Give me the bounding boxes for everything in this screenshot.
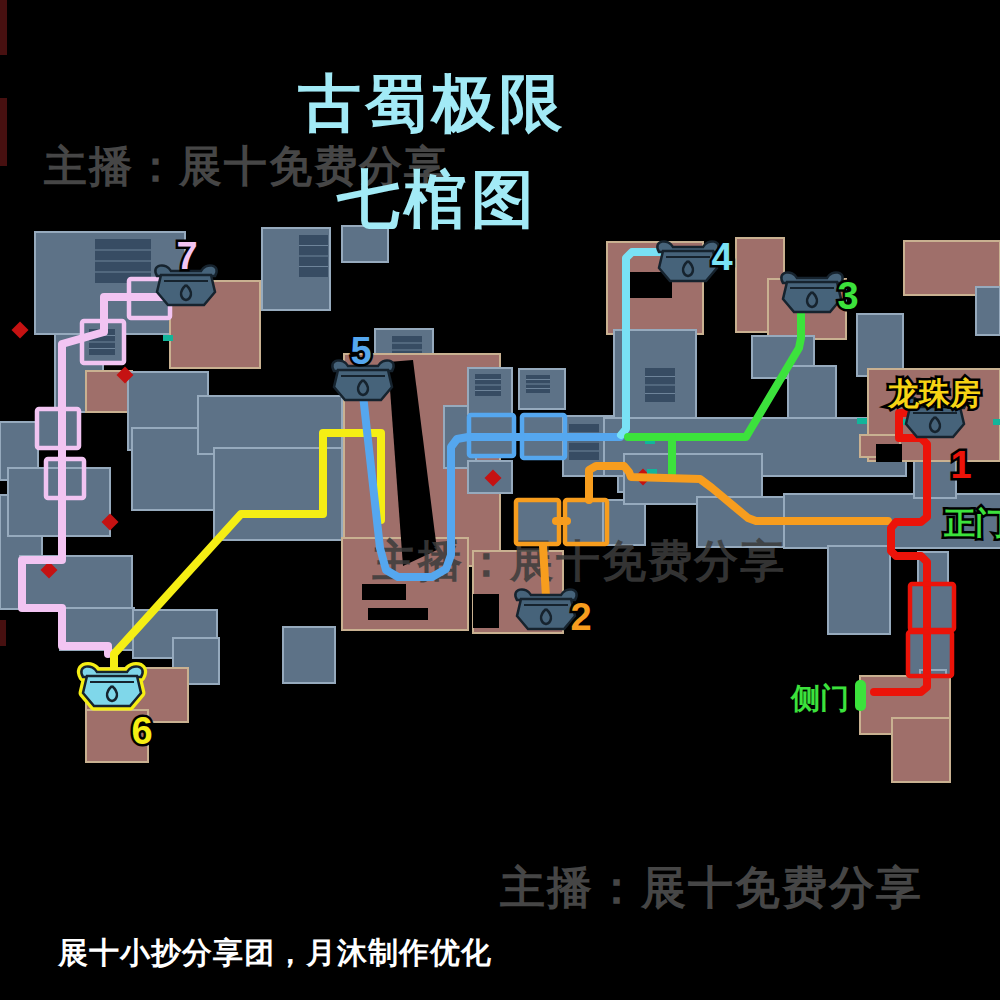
label-side-gate: 侧门 — [790, 682, 849, 714]
coffin-icon-3 — [781, 272, 842, 312]
route-7-number: 7 — [176, 235, 197, 277]
door-marker — [857, 418, 867, 424]
map-room-red — [892, 718, 950, 782]
map-room-blue — [976, 287, 1000, 335]
map-edge-decoration — [0, 0, 7, 55]
coffin-icon-4 — [657, 241, 718, 281]
coffin-icon-2 — [515, 589, 576, 629]
map-room-blue — [20, 556, 132, 610]
map-edge-decoration — [0, 98, 7, 166]
map-hole — [876, 444, 902, 462]
map-room-blue — [788, 366, 836, 424]
route-5-number: 5 — [350, 330, 371, 372]
page-title-line1: 古蜀极限 — [298, 72, 566, 135]
side-gate-door-marker — [855, 680, 866, 711]
page-title-line2: 七棺图 — [337, 168, 538, 231]
label-main-gate: 正门 — [944, 506, 1000, 541]
map-room-blue — [910, 584, 954, 630]
screenshot-root: { "texts": { "title_line1": "古蜀极限", "tit… — [0, 0, 1000, 1000]
route-1-number: 1 — [950, 444, 971, 486]
route-2-path — [543, 546, 546, 597]
route-3-number: 3 — [837, 275, 858, 317]
coffin-icon-6 — [81, 666, 142, 706]
route-6-number: 6 — [131, 710, 152, 752]
door-marker — [163, 335, 173, 341]
label-dragon-pearl-room: 龙珠房 — [887, 376, 981, 411]
red-diamond-marker — [12, 322, 29, 339]
map-edge-decoration — [0, 620, 6, 646]
map-room-blue — [828, 546, 890, 634]
map-hole — [473, 594, 499, 628]
credit-text: 展十小抄分享团，月沐制作优化 — [58, 938, 492, 968]
map-room-blue — [283, 627, 335, 683]
map-hole — [362, 584, 406, 600]
route-2-number: 2 — [570, 596, 591, 638]
map-hole — [368, 608, 428, 620]
door-marker — [993, 419, 1000, 425]
map-room-blue — [857, 314, 903, 376]
watermark-bottom-right: 主播：展十免费分享 — [500, 865, 923, 910]
route-4-number: 4 — [711, 236, 732, 278]
